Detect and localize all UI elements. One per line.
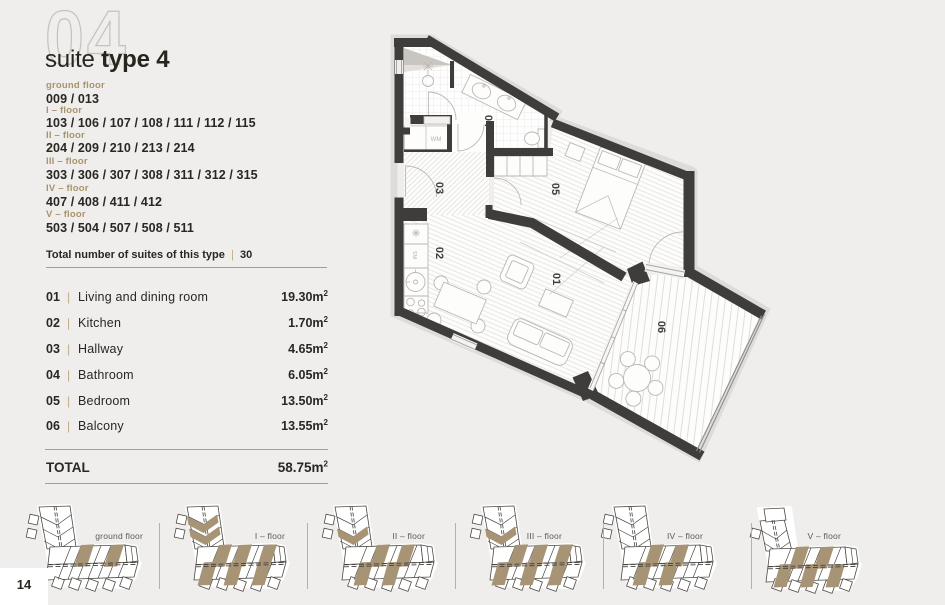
svg-text:01: 01: [550, 273, 562, 285]
svg-text:06: 06: [655, 321, 667, 333]
svg-text:04: 04: [482, 115, 494, 128]
svg-text:SM: SM: [411, 251, 417, 260]
svg-text:02: 02: [433, 247, 445, 259]
svg-text:WM: WM: [431, 137, 442, 143]
svg-text:05: 05: [549, 183, 561, 195]
svg-text:03: 03: [433, 182, 445, 194]
